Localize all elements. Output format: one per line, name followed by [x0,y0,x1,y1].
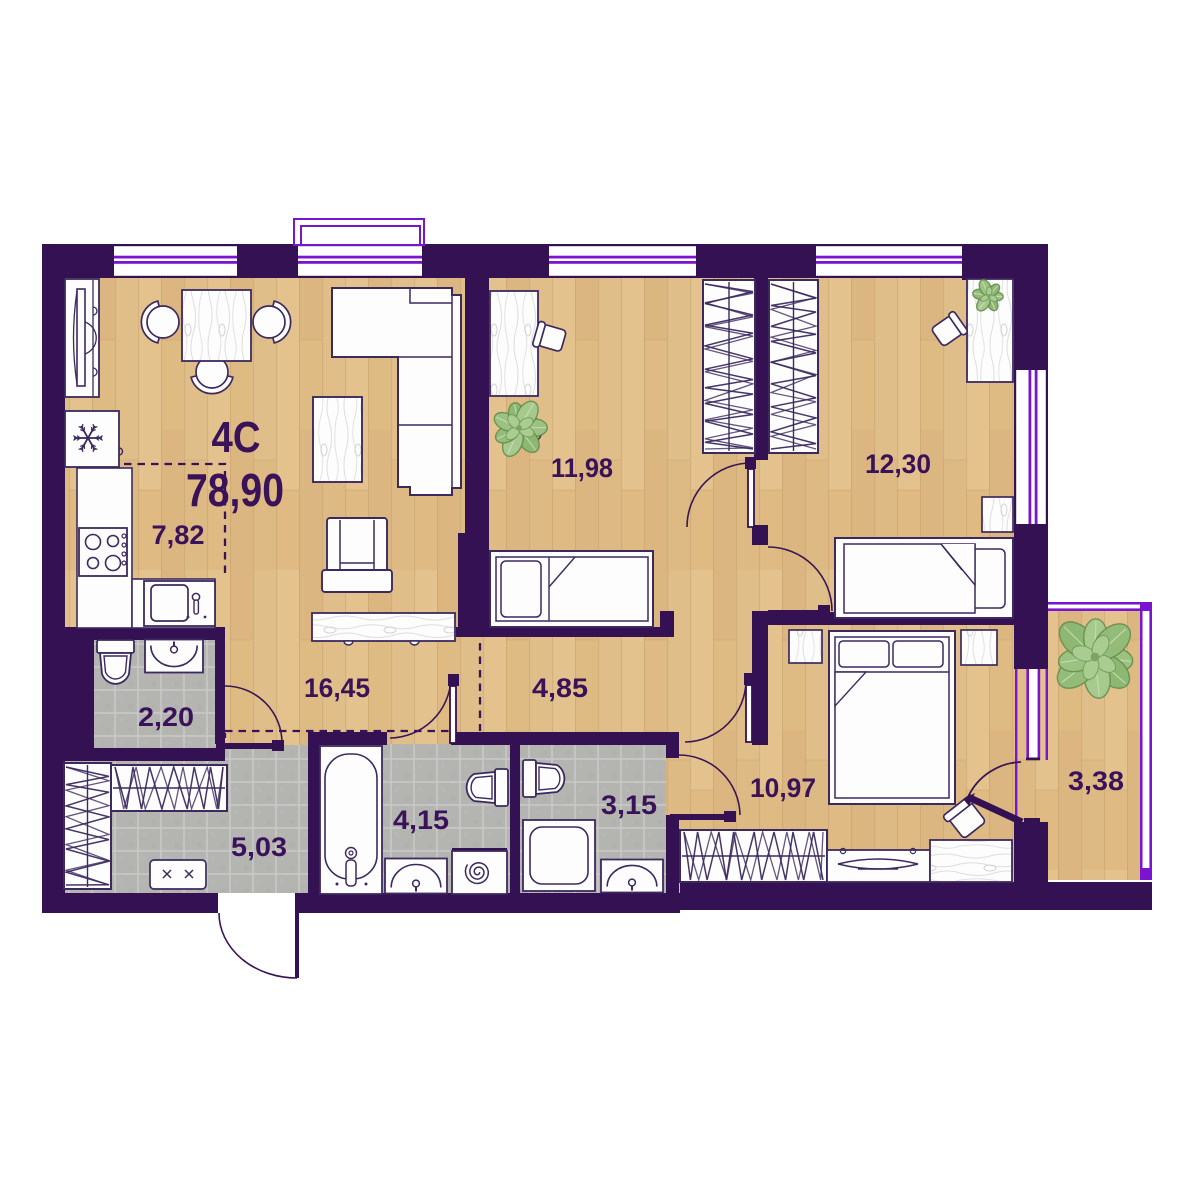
svg-text:10,97: 10,97 [750,773,816,803]
svg-text:7,82: 7,82 [152,520,205,550]
svg-text:4,85: 4,85 [532,673,588,703]
svg-text:4,15: 4,15 [393,805,449,835]
svg-text:12,30: 12,30 [865,449,931,479]
svg-text:4C: 4C [212,413,261,462]
svg-text:5,03: 5,03 [231,832,287,862]
svg-text:2,20: 2,20 [138,702,194,732]
svg-text:3,15: 3,15 [601,790,657,820]
svg-text:3,38: 3,38 [1068,766,1124,796]
svg-text:78,90: 78,90 [186,464,284,516]
svg-text:11,98: 11,98 [551,453,613,483]
svg-text:16,45: 16,45 [304,673,370,703]
